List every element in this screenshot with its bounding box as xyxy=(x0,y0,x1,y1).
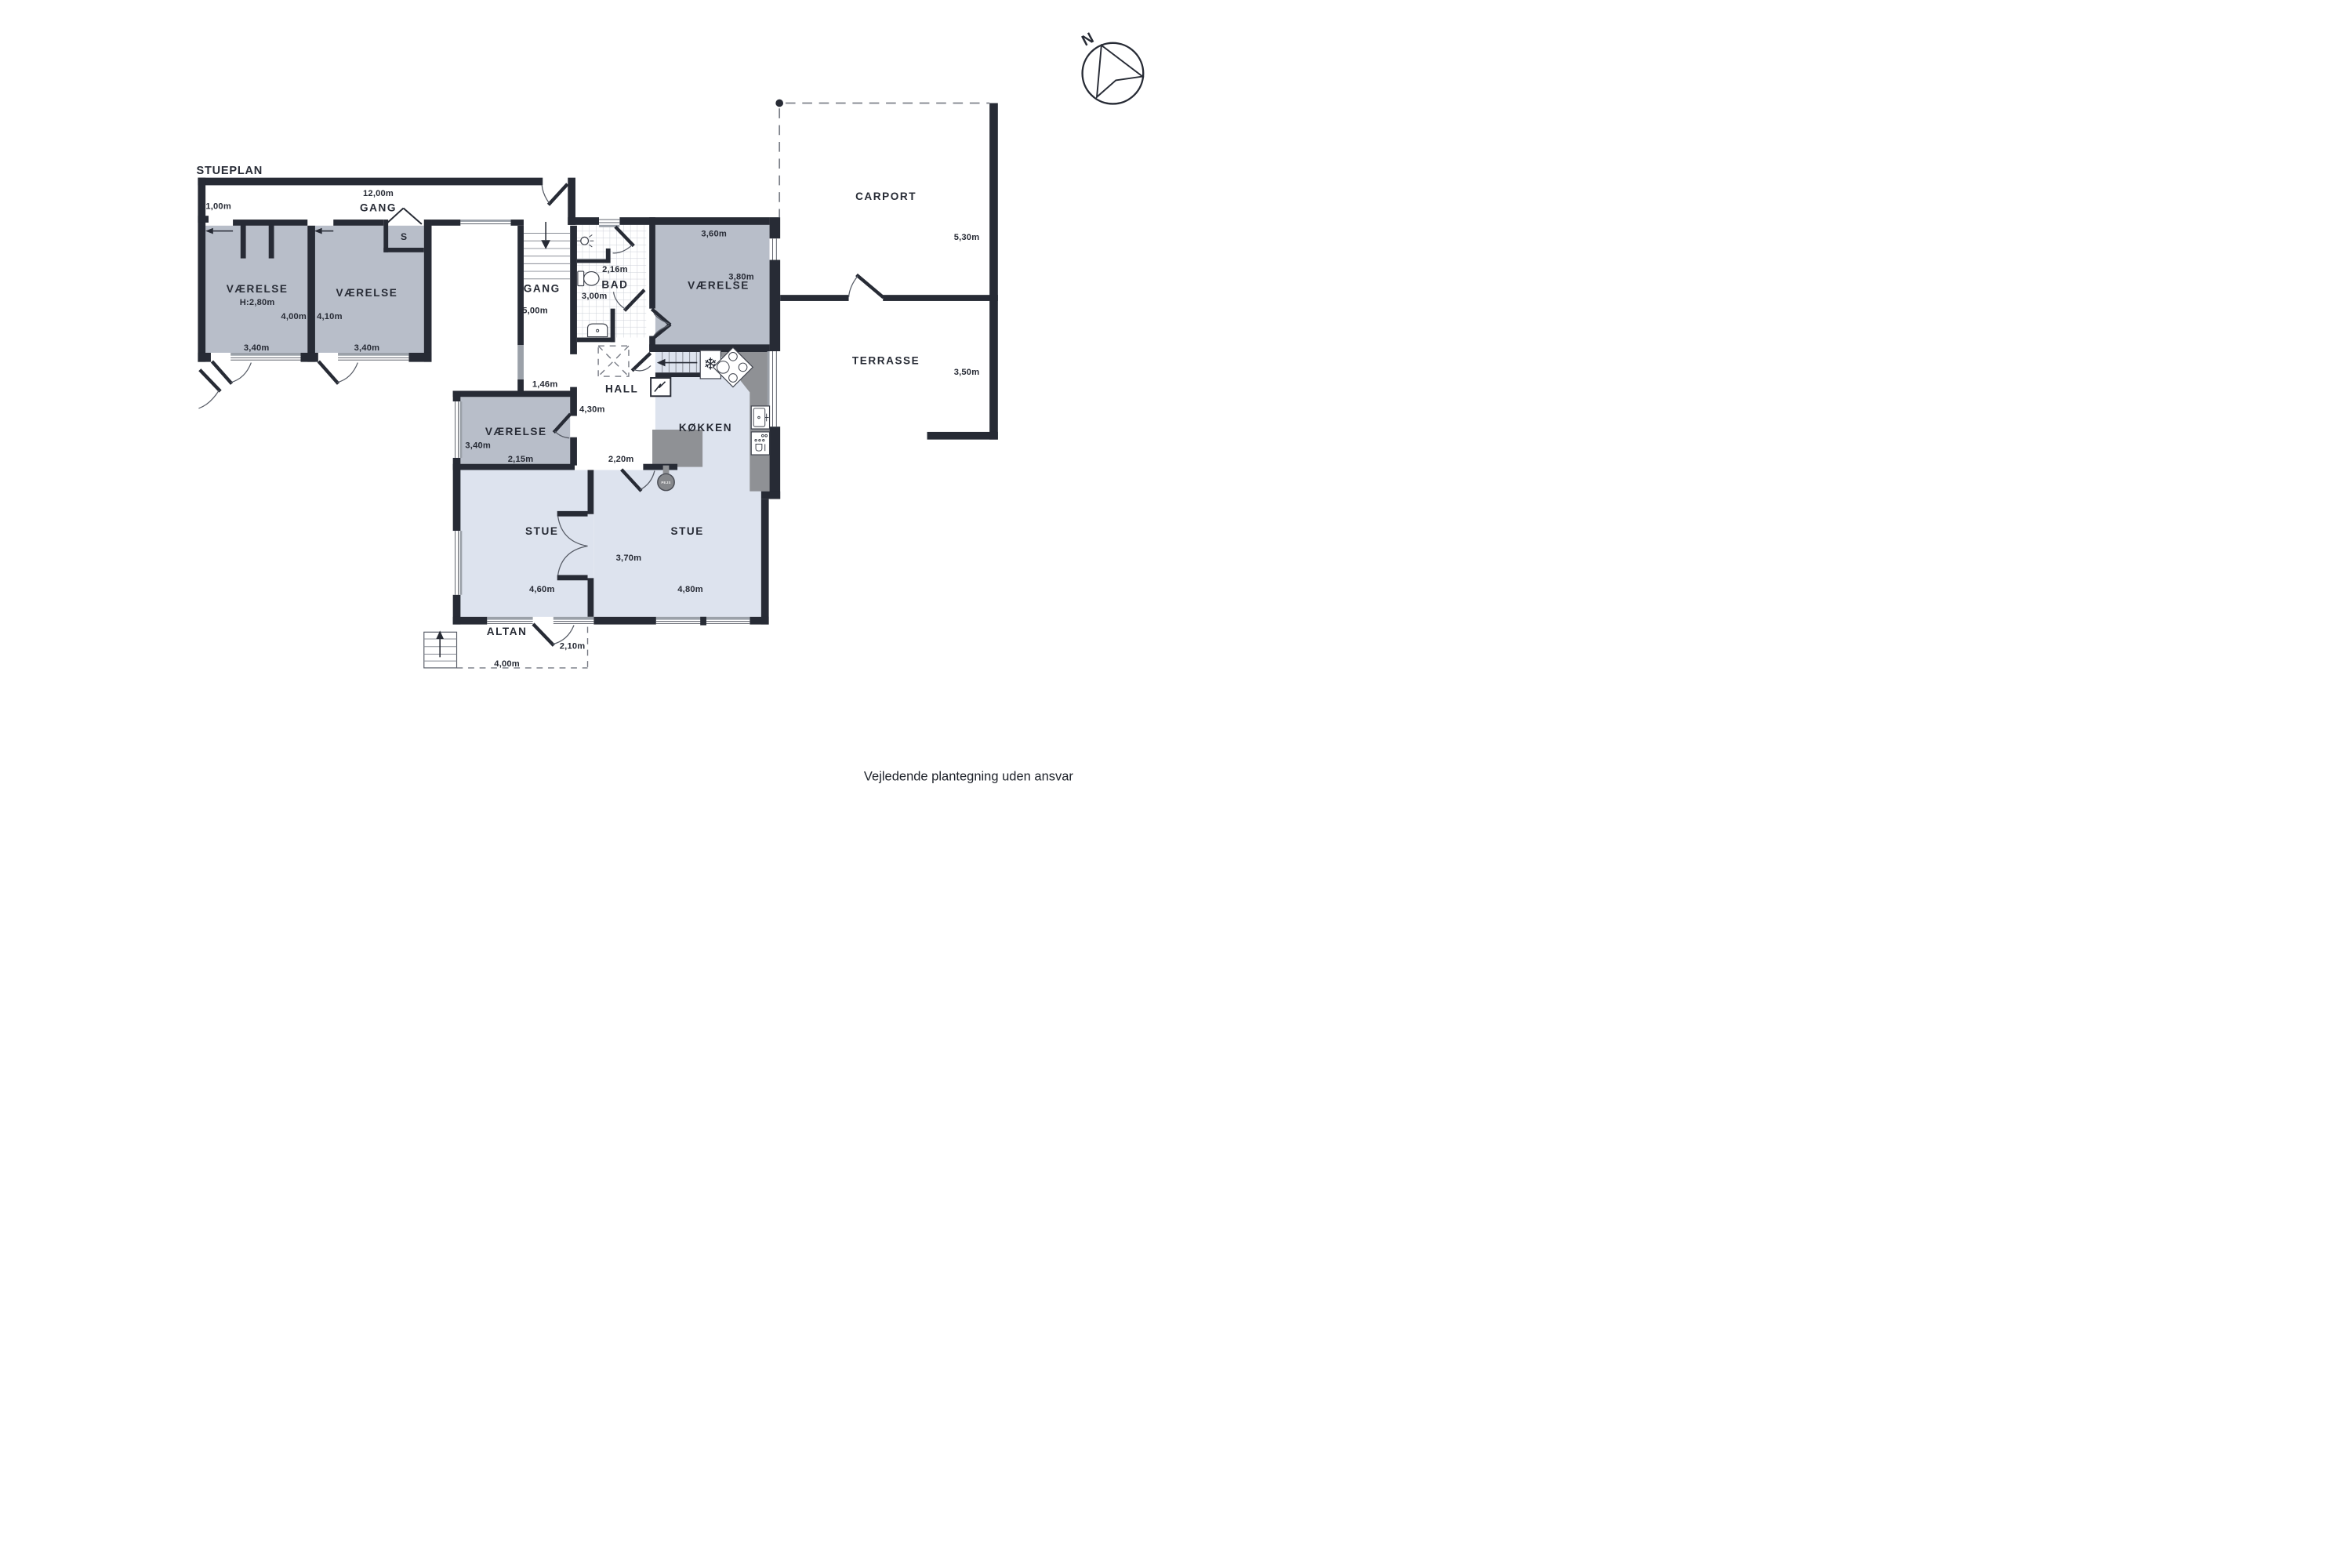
electric-meter-icon xyxy=(651,378,670,396)
stairs-altan xyxy=(424,630,457,668)
room-floor-stue-left xyxy=(460,470,587,616)
room-floor-stue-right xyxy=(593,470,761,616)
door-arc xyxy=(542,185,566,203)
window xyxy=(517,345,524,379)
window xyxy=(338,353,408,362)
room-label-koekken: KØKKEN xyxy=(679,422,732,434)
dim-stue-right-width: 4,80m xyxy=(677,585,703,594)
toilet-icon xyxy=(578,271,599,285)
dim-vaerelse3-width: 2,15m xyxy=(508,455,534,464)
room-label-gang-mid: GANG xyxy=(524,282,561,294)
closet-label: S xyxy=(401,231,408,242)
dim-gang-mid-length: 5,00m xyxy=(522,306,548,315)
window xyxy=(554,617,593,626)
window xyxy=(656,617,750,626)
room-label-stue-right: STUE xyxy=(670,525,703,537)
dim-hall-length: 4,30m xyxy=(579,405,605,415)
dim-vaerelse1-width: 3,40m xyxy=(244,343,270,353)
door-arc xyxy=(320,363,358,383)
dim-bad-length: 3,00m xyxy=(582,292,608,301)
room-label-vaerelse-2: VÆRELSE xyxy=(336,287,398,299)
door-arc xyxy=(213,363,252,383)
window xyxy=(230,353,300,362)
sink-icon xyxy=(751,406,769,429)
dim-terrasse-depth: 3,50m xyxy=(954,368,980,377)
window xyxy=(770,238,781,260)
floorplan-page: ❄ xyxy=(0,0,1176,784)
floors xyxy=(205,225,769,617)
stairs-down-arrow xyxy=(541,222,550,249)
dishwasher-icon xyxy=(751,432,769,455)
dim-stue-left-width: 4,60m xyxy=(529,585,555,594)
door-arc xyxy=(198,371,219,408)
dim-vaerelse3-depth: 3,40m xyxy=(465,441,491,450)
floorplan-drawing: ❄ xyxy=(0,0,1176,784)
dim-stue-right-depth: 3,70m xyxy=(616,554,642,563)
dim-vaerelse4-depth: 3,80m xyxy=(728,273,754,282)
stairs-middle-gang xyxy=(524,222,570,279)
door-arc xyxy=(849,276,883,297)
dim-hall-opening: 2,20m xyxy=(608,455,634,464)
window xyxy=(487,617,532,626)
dim-vaerelse4-width: 3,60m xyxy=(701,229,727,238)
room-label-gang-wing: GANG xyxy=(360,201,397,213)
window xyxy=(460,220,510,226)
skylight xyxy=(598,346,629,376)
svg-text:N: N xyxy=(1079,29,1097,49)
counter-bottom xyxy=(652,430,702,467)
page-title: STUEPLAN xyxy=(196,165,263,177)
disclaimer-text: Vejledende plantegning uden ansvar xyxy=(864,770,1073,784)
room-label-vaerelse-3: VÆRELSE xyxy=(485,426,547,437)
room-label-bad: BAD xyxy=(601,278,628,290)
dim-vaerelse2-width: 3,40m xyxy=(354,343,380,353)
room-floor-divider-gap xyxy=(588,514,594,579)
dim-gang-wall: 1,00m xyxy=(205,201,231,211)
room-label-vaerelse-1: VÆRELSE xyxy=(227,283,289,295)
dim-carport-depth: 5,30m xyxy=(954,233,980,242)
room-label-carport: CARPORT xyxy=(855,191,916,202)
dim-altan-depth: 2,10m xyxy=(560,642,586,652)
dim-gang-mid-passage: 1,46m xyxy=(532,380,558,390)
dim-bad-width: 2,16m xyxy=(602,265,628,274)
dim-ceiling-height: H:2,80m xyxy=(240,298,275,307)
room-label-terrasse: TERRASSE xyxy=(852,355,920,367)
window xyxy=(453,531,463,595)
dim-vaerelse1-depth: 4,00m xyxy=(281,312,307,321)
window xyxy=(453,401,463,458)
room-label-hall: HALL xyxy=(605,383,638,394)
compass-icon: N xyxy=(1079,29,1143,103)
room-label-stue-left: STUE xyxy=(525,525,558,537)
dim-altan-width: 4,00m xyxy=(494,659,520,669)
dim-vaerelse2-depth: 4,10m xyxy=(317,312,343,321)
svg-text:PEJS: PEJS xyxy=(661,481,670,485)
room-label-altan: ALTAN xyxy=(487,626,528,637)
carport-post xyxy=(775,100,783,107)
washbasin-icon xyxy=(588,324,608,337)
dim-gang-width: 12,00m xyxy=(363,189,394,198)
door-arc xyxy=(633,354,651,371)
